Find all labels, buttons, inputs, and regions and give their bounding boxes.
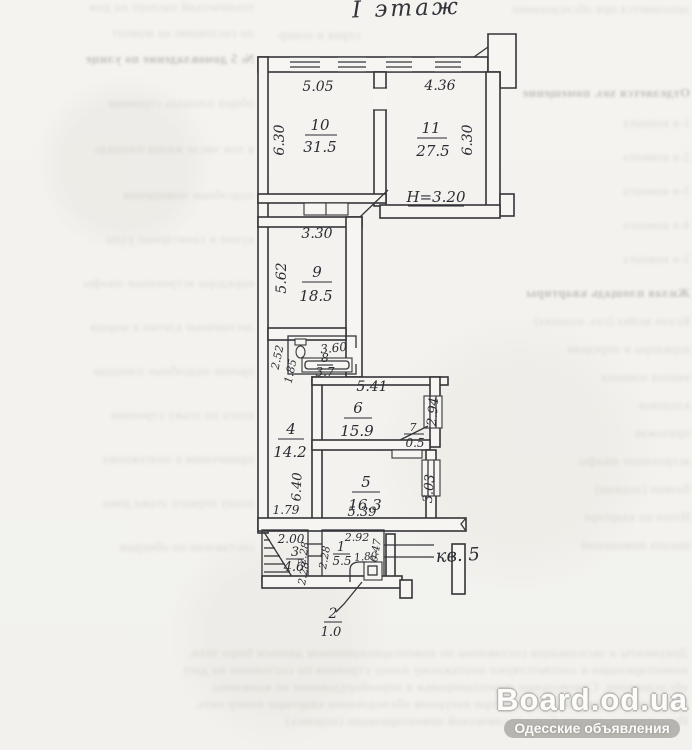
room1-area: 5.5	[332, 554, 351, 568]
room4-height-dim: 6.40	[290, 472, 306, 501]
room9-width-dim: 3.30	[301, 226, 332, 242]
apartment-label: кв. 5	[435, 544, 480, 567]
room9-number: 9	[312, 263, 322, 281]
room1-dim-3: 0.47	[368, 538, 384, 563]
room2-area: 1.0	[321, 625, 342, 640]
room11-width-dim: 4.36	[423, 78, 455, 94]
room10-area: 31.5	[303, 138, 336, 156]
room6-area: 15.9	[340, 422, 374, 440]
ceiling-height-note: H=3.20	[405, 188, 466, 206]
room8-area: 3.7	[315, 365, 334, 379]
toilet-bowl	[296, 346, 305, 358]
room2-number: 2	[328, 606, 338, 622]
room6-width-dim: 5.41	[356, 379, 387, 395]
room11-height-dim: 6.30	[460, 124, 476, 155]
room9-area: 18.5	[299, 287, 332, 305]
site-watermark: Board.od.ua Одесские объявления	[496, 682, 688, 738]
room5-width-dim: 5.39	[348, 505, 377, 520]
room8-number: 8	[321, 351, 329, 365]
room7-number: 7	[410, 421, 417, 434]
watermark-site-name: Board.od.ua	[496, 682, 688, 718]
room4-area: 14.2	[273, 443, 306, 461]
entry-step	[400, 580, 412, 598]
room5-height-dim: 3.03	[421, 474, 438, 504]
room4-dim-1: 1.79	[273, 503, 300, 517]
room1-number: 1	[337, 540, 345, 555]
room10-height-dim: 6.30	[272, 124, 288, 155]
room5-number: 5	[361, 473, 371, 491]
roof-jog-line	[474, 47, 488, 57]
flue-box	[326, 203, 348, 215]
room10-width-dim: 5.05	[302, 79, 333, 95]
room8-dim-2: 1.85	[282, 358, 300, 385]
watermark-tagline: Одесские объявления	[504, 719, 679, 738]
pilaster	[500, 194, 514, 216]
room4-number: 4	[285, 420, 296, 438]
scanned-floor-plan-sheet: { "page": { "title": "I этаж" }, "plan":…	[0, 0, 692, 750]
room11-number: 11	[421, 119, 440, 137]
room1-width-dim: 2.92	[344, 531, 370, 544]
niche-box	[392, 450, 422, 458]
room11-area: 27.5	[415, 142, 449, 160]
toilet-tank	[295, 339, 306, 345]
stove-box	[364, 562, 382, 580]
room6-height-dim: 2.94	[425, 397, 443, 428]
room10-number: 10	[310, 116, 330, 134]
room7-area: 0.5	[405, 436, 424, 450]
room9-height-dim: 5.62	[274, 262, 290, 293]
floor-plan-drawing: 10 31.5 5.05 6.30 11 27.5 4.36 6.30 H=3.…	[0, 0, 692, 750]
room6-number: 6	[353, 399, 363, 417]
room1-dim-1: 2.28	[317, 545, 333, 571]
flue-box	[304, 203, 326, 215]
